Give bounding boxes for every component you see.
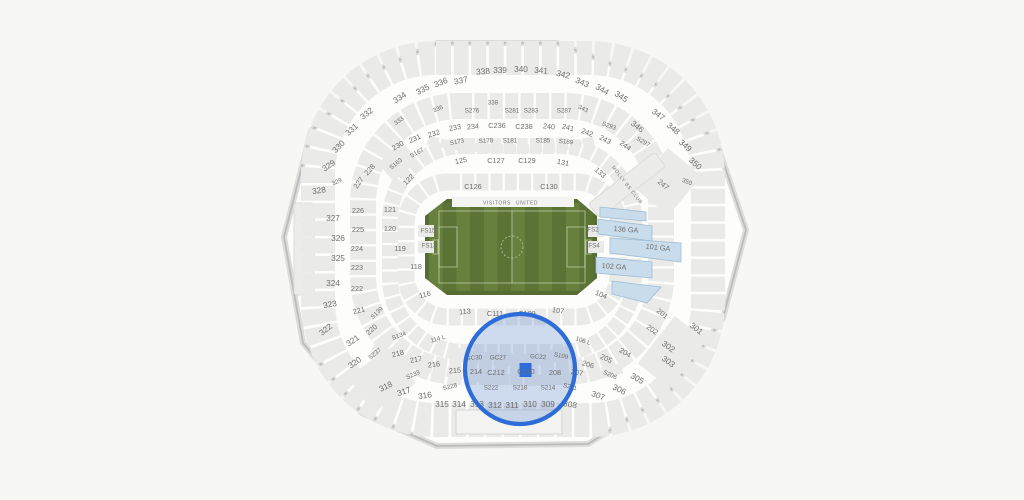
section-label-328[interactable]: 328 <box>311 184 326 196</box>
section-label-309[interactable]: 309 <box>541 399 555 409</box>
section-label-c126[interactable]: C126 <box>464 182 481 191</box>
section-label-fs4[interactable]: FS4 <box>588 243 600 250</box>
section-label-s178[interactable]: S178 <box>479 137 494 145</box>
section-label-c236[interactable]: C236 <box>488 121 505 130</box>
section-label-326[interactable]: 326 <box>331 233 345 243</box>
section-label-c238[interactable]: C238 <box>515 122 532 131</box>
section-label-316[interactable]: 316 <box>417 389 432 401</box>
section-label-226[interactable]: 226 <box>352 206 364 215</box>
section-label-325[interactable]: 325 <box>331 253 345 263</box>
field-stripe <box>498 203 512 291</box>
section-label-341[interactable]: 341 <box>534 65 549 76</box>
section-label-234[interactable]: 234 <box>466 121 479 131</box>
section-label-339[interactable]: 339 <box>493 65 507 75</box>
field-stripe <box>566 203 580 291</box>
section-label-121[interactable]: 121 <box>384 205 396 214</box>
section-label-340[interactable]: 340 <box>514 64 528 74</box>
field-stripe <box>552 203 566 291</box>
section-label-c129[interactable]: C129 <box>518 156 535 165</box>
section-label-gc27[interactable]: GC27 <box>490 355 507 362</box>
section-label-136-ga[interactable]: 136 GA <box>613 224 638 235</box>
section-label-240[interactable]: 240 <box>543 121 556 131</box>
section-label-c127[interactable]: C127 <box>487 156 504 165</box>
section-label-208[interactable]: 208 <box>549 368 561 377</box>
section-label-311[interactable]: 311 <box>505 400 519 410</box>
seating-map-canvas: MOLLY BS CLUBVISITORSUNITED3303313323333… <box>0 0 1024 500</box>
section-label-314[interactable]: 314 <box>452 399 466 409</box>
section-label-310[interactable]: 310 <box>523 399 537 409</box>
field-stripes <box>429 203 593 291</box>
section-label-s218[interactable]: S218 <box>513 385 528 392</box>
section-label-113[interactable]: 113 <box>459 306 472 316</box>
section-label-120[interactable]: 120 <box>384 224 396 233</box>
field-stripe <box>484 203 498 291</box>
section-label-214[interactable]: 214 <box>470 367 482 376</box>
section-label-c212[interactable]: C212 <box>487 368 504 377</box>
section-label-s287[interactable]: S287 <box>557 108 572 115</box>
section-label-c210[interactable]: C210 <box>517 367 534 376</box>
section-label-s214[interactable]: S214 <box>541 385 556 392</box>
section-label-s222[interactable]: S222 <box>484 385 499 392</box>
field-stripe <box>539 203 553 291</box>
visitors-bench-label: VISITORS <box>483 200 511 206</box>
section-label-s185[interactable]: S185 <box>536 138 551 145</box>
section-label-215[interactable]: 215 <box>449 366 462 376</box>
section-label-222[interactable]: 222 <box>351 284 363 293</box>
section-label-327[interactable]: 327 <box>326 213 340 223</box>
home-bench-label: UNITED <box>516 200 538 206</box>
stadium-seating-map: MOLLY BS CLUBVISITORSUNITED3303313323333… <box>0 0 1024 500</box>
section-label-223[interactable]: 223 <box>351 263 363 272</box>
section-label-225[interactable]: 225 <box>352 225 364 234</box>
section-label-s181[interactable]: S181 <box>503 138 518 145</box>
section-label-s281[interactable]: S281 <box>505 108 520 115</box>
section-label-338[interactable]: 338 <box>476 66 491 77</box>
section-label-216[interactable]: 216 <box>427 359 440 369</box>
field-stripe <box>443 203 457 291</box>
section-label-c130[interactable]: C130 <box>540 182 557 191</box>
section-label-s283[interactable]: S283 <box>524 108 539 115</box>
section-label-118[interactable]: 118 <box>410 262 422 271</box>
section-label-224[interactable]: 224 <box>351 244 363 253</box>
section-label-fs2[interactable]: FS2 <box>587 227 599 234</box>
section-label-fs13[interactable]: FS13 <box>422 243 437 250</box>
section-label-gc22[interactable]: GC22 <box>530 353 547 361</box>
section-label-312[interactable]: 312 <box>488 400 502 410</box>
section-label-315[interactable]: 315 <box>435 399 449 409</box>
field-stripe <box>525 203 539 291</box>
sideline-label-strip <box>452 197 574 207</box>
section-label-324[interactable]: 324 <box>326 278 340 288</box>
section-label-338[interactable]: 338 <box>488 100 499 107</box>
section-label-fs15[interactable]: FS15 <box>421 228 436 235</box>
field-stripe <box>470 203 484 291</box>
section-label-102-ga[interactable]: 102 GA <box>601 261 626 272</box>
section-label-107[interactable]: 107 <box>551 305 564 316</box>
section-label-119[interactable]: 119 <box>394 244 406 253</box>
section-label-s276[interactable]: S276 <box>465 108 480 115</box>
field-stripe <box>456 203 470 291</box>
